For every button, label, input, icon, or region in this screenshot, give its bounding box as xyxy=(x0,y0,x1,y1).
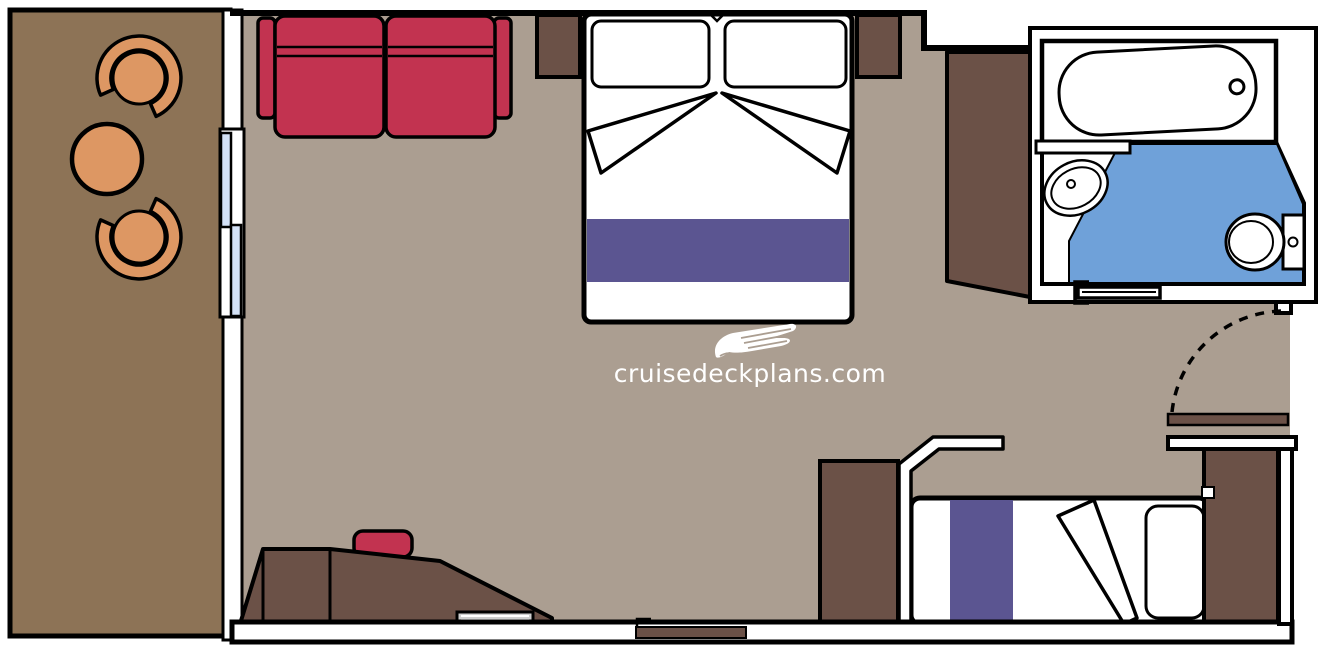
nightstand-left xyxy=(537,15,580,77)
bathroom xyxy=(1030,28,1316,303)
balcony-divider-wall xyxy=(220,10,244,640)
single-bed-pillow xyxy=(1146,506,1204,618)
wardrobe xyxy=(947,52,1030,297)
sink-faucet xyxy=(1067,180,1075,188)
toilet-flush-button xyxy=(1289,238,1298,247)
corner-closet xyxy=(1202,448,1278,624)
balcony-table xyxy=(72,124,142,194)
single-bed xyxy=(911,498,1208,624)
floor-plan-canvas: cruisedeckplans.com xyxy=(0,0,1319,648)
nightstand-right xyxy=(857,15,900,77)
sofa-armrest-left xyxy=(258,18,275,118)
bed-blanket xyxy=(587,219,849,282)
pillow-left xyxy=(592,21,709,87)
bottom-wall xyxy=(232,619,1292,642)
pillow-right xyxy=(725,21,846,87)
queen-bed xyxy=(584,14,852,322)
bathtub xyxy=(1057,44,1258,137)
chair-seat xyxy=(113,52,165,104)
balcony xyxy=(10,10,230,636)
entry-door xyxy=(1168,414,1288,425)
closet-notch xyxy=(1202,487,1214,498)
sink-counter xyxy=(1036,141,1130,153)
sliding-glass-door-panel-outer xyxy=(221,133,231,227)
entry-wall xyxy=(1168,437,1296,449)
single-bed-blanket xyxy=(950,500,1013,622)
toilet-bowl xyxy=(1226,214,1284,270)
chair-seat xyxy=(113,211,165,263)
watermark-text: cruisedeckplans.com xyxy=(614,359,887,388)
balcony-floor xyxy=(10,10,230,636)
sofa-cushion-right xyxy=(386,16,495,137)
cabinet-beside-single-bed xyxy=(820,461,898,624)
floor-plan: cruisedeckplans.com xyxy=(0,0,1319,648)
toilet xyxy=(1226,214,1304,270)
bottom-wall-inset xyxy=(636,627,746,638)
sofa-cushion-left xyxy=(275,16,384,137)
sliding-glass-door-panel-inner xyxy=(231,225,241,316)
right-wall xyxy=(1279,448,1292,624)
bathtub-drain xyxy=(1230,79,1245,94)
sofa xyxy=(258,16,511,137)
divider-wall xyxy=(223,10,242,640)
